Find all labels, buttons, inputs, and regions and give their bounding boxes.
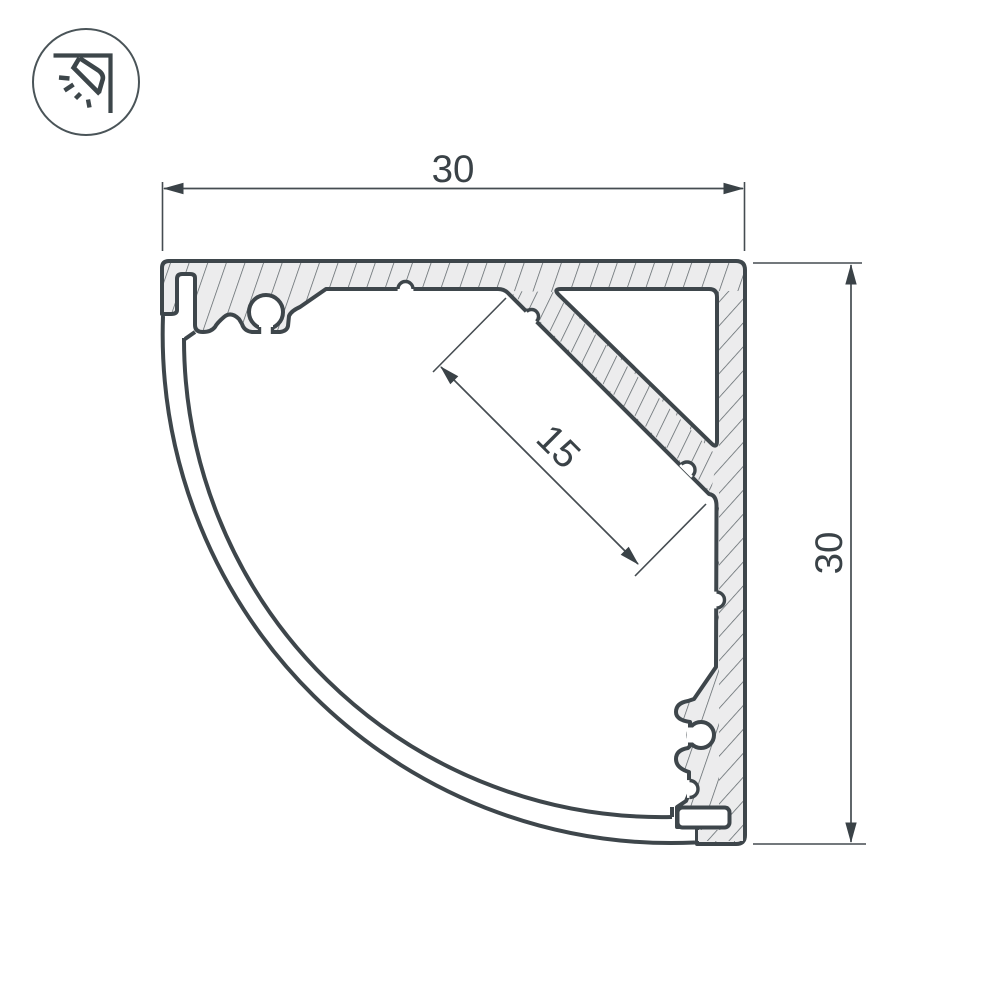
- svg-text:30: 30: [808, 532, 851, 575]
- svg-text:15: 15: [528, 416, 589, 477]
- svg-text:30: 30: [432, 148, 475, 191]
